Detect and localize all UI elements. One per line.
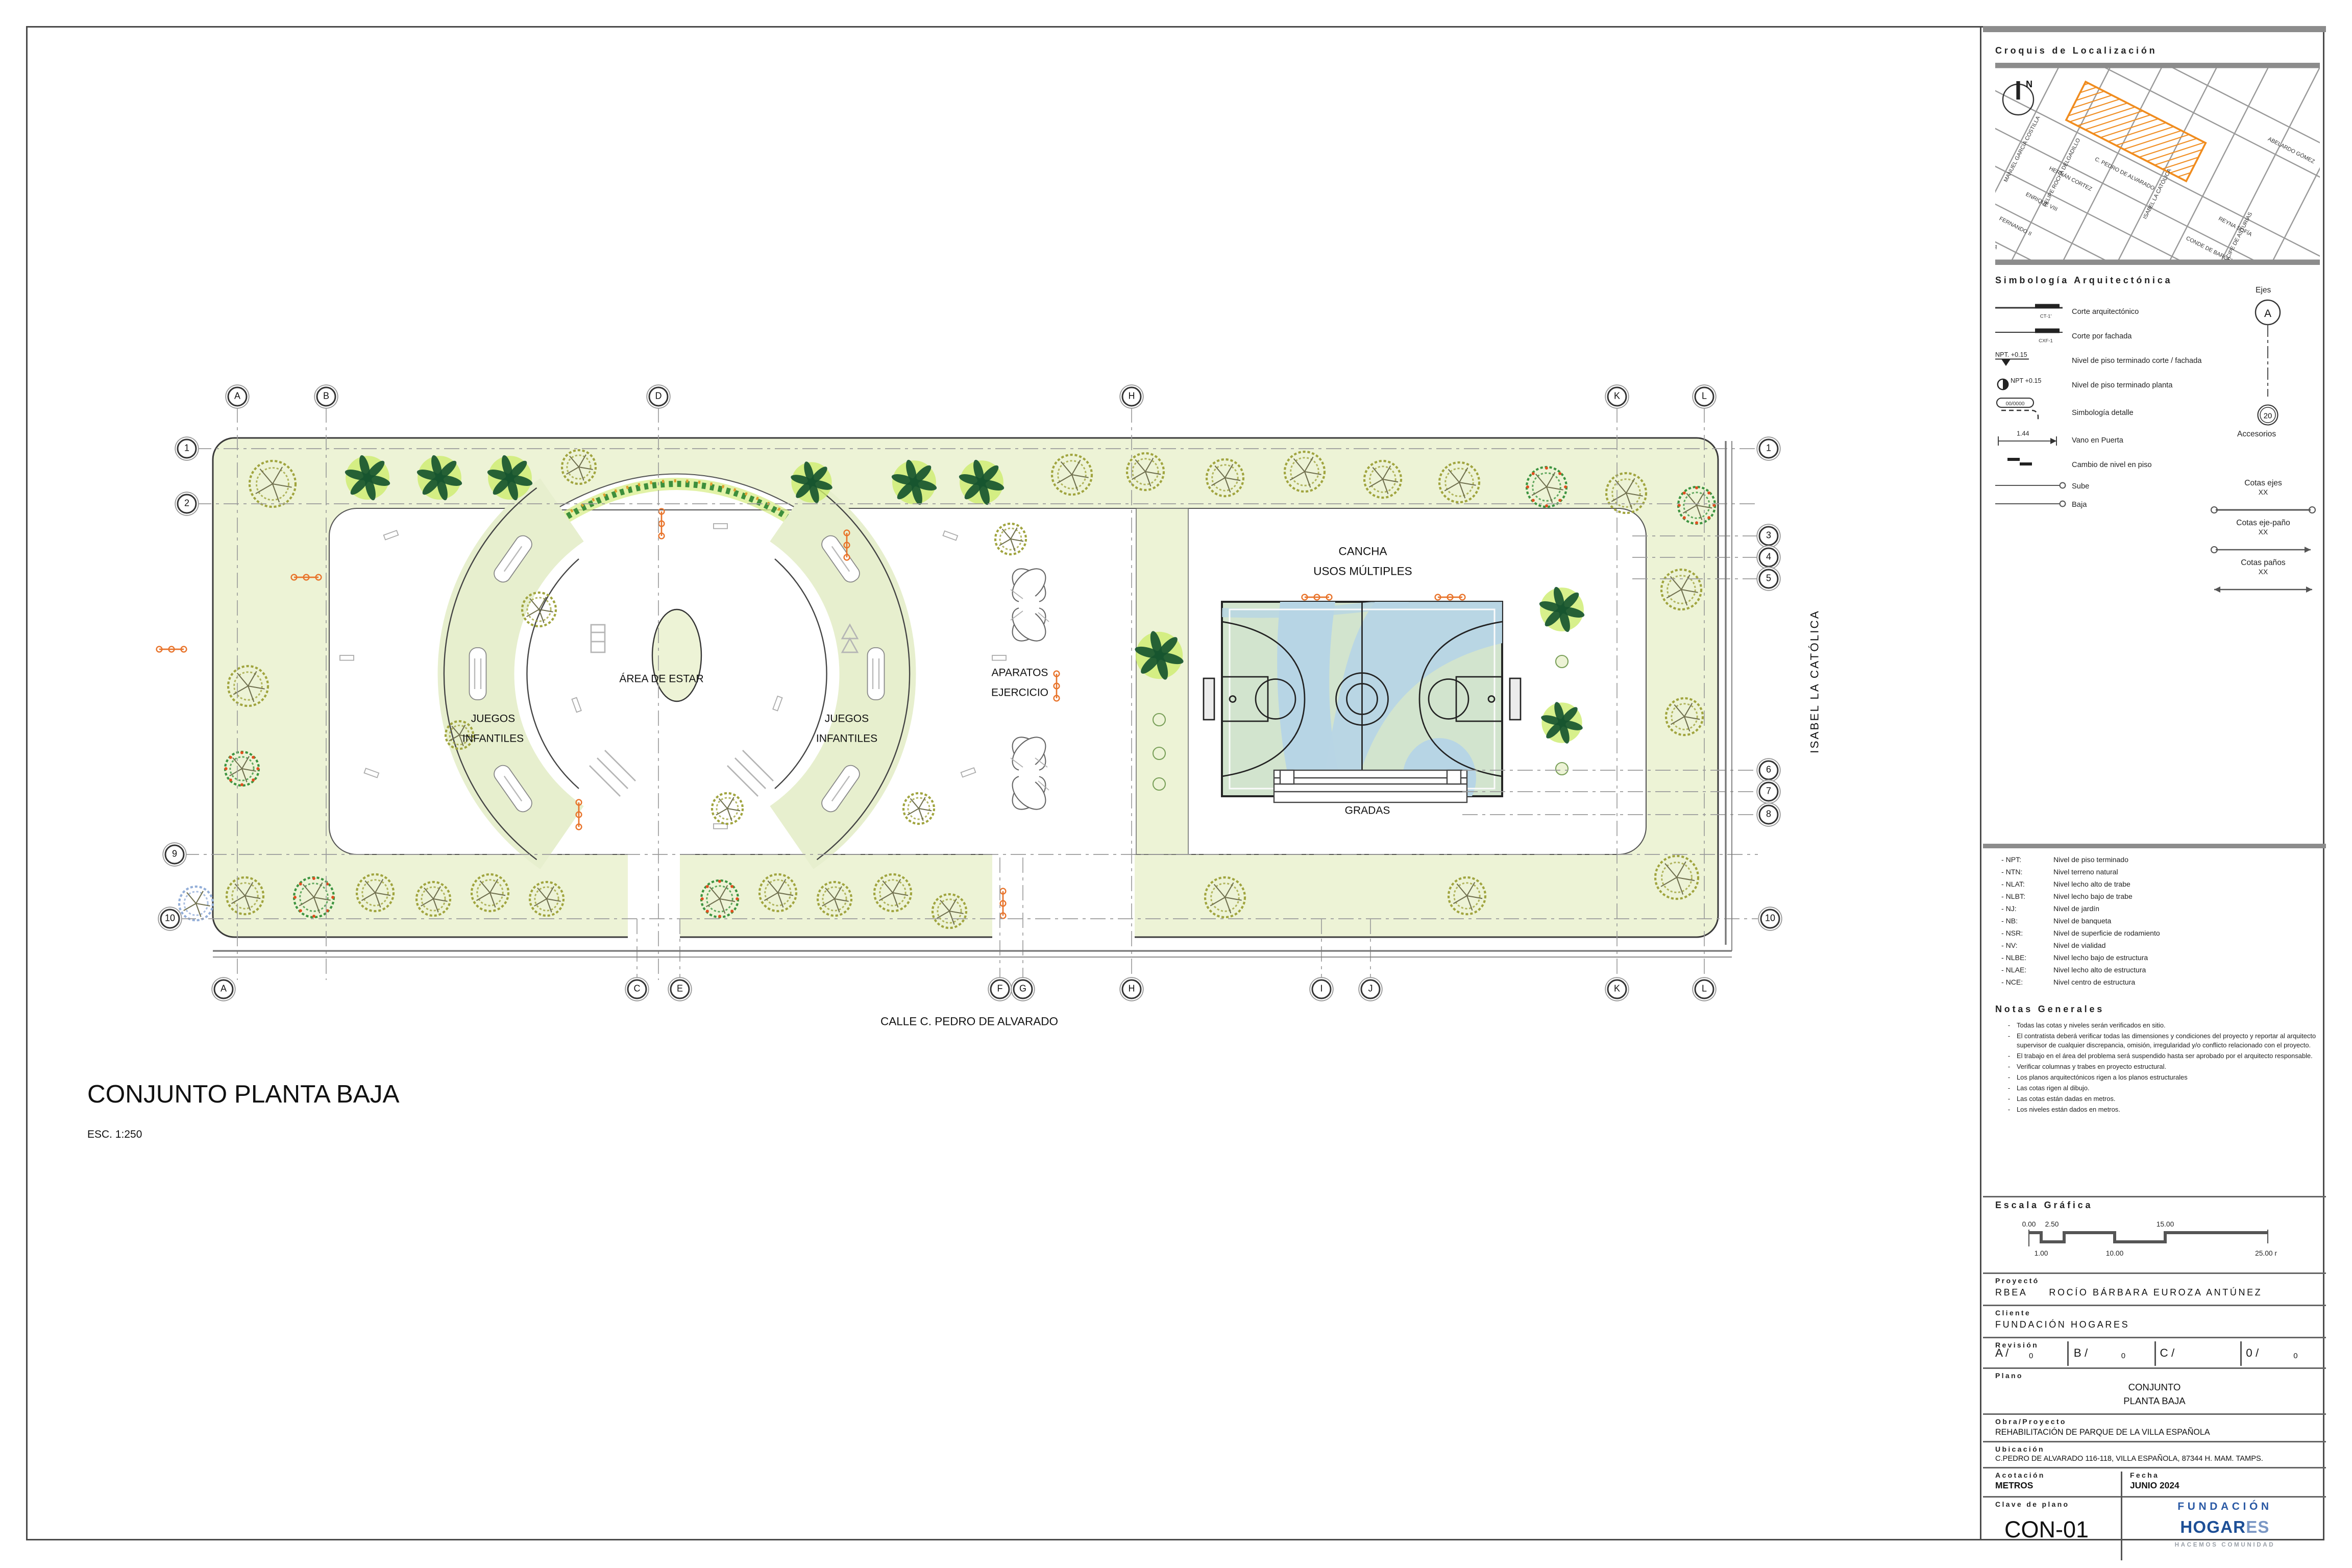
svg-text:10.00: 10.00 bbox=[2106, 1249, 2124, 1257]
titleblock-topbar bbox=[1983, 26, 2326, 32]
axis-bubble-3: 3 bbox=[1759, 526, 1779, 546]
plano-value-line1: CONJUNTO bbox=[1983, 1383, 2326, 1393]
abbreviation-row: - NTN:Nivel terreno natural bbox=[2001, 867, 2315, 879]
ejes-title: Ejes bbox=[2256, 286, 2271, 296]
nota-item: -Verificar columnas y trabes en proyecto… bbox=[2001, 1063, 2317, 1071]
notas-list: -Todas las cotas y niveles serán verific… bbox=[2001, 1021, 2317, 1117]
abbreviation-row: - NV:Nivel de vialidad bbox=[2001, 940, 2315, 952]
plano-value-line2: PLANTA BAJA bbox=[1983, 1396, 2326, 1407]
axis-bubble-H: H bbox=[1122, 387, 1142, 407]
axis-bubble-K: K bbox=[1607, 979, 1627, 999]
divider bbox=[1983, 1496, 2326, 1498]
logo-line1: FUNDACIÓN bbox=[2130, 1502, 2320, 1513]
axis-bubble-4: 4 bbox=[1759, 548, 1779, 568]
axis-bubble-J: J bbox=[1361, 979, 1381, 999]
nota-item: -El trabajo en el área del problema será… bbox=[2001, 1051, 2317, 1060]
divider bbox=[2121, 1496, 2122, 1560]
svg-text:25.00 m: 25.00 m bbox=[2255, 1249, 2277, 1257]
axis-bubble-L: L bbox=[1695, 387, 1714, 407]
axis-bubble-A: A bbox=[228, 387, 248, 407]
plano-label: Plano bbox=[1995, 1372, 2023, 1380]
nota-item: -El contratista deberá verificar todas l… bbox=[2001, 1032, 2317, 1049]
nota-item: -Las cotas rigen al dibujo. bbox=[2001, 1084, 2317, 1093]
abbreviation-row: - NCE:Nivel centro de estructura bbox=[2001, 977, 2315, 989]
axis-bubble-F: F bbox=[990, 979, 1010, 999]
axis-bubble-E: E bbox=[670, 979, 690, 999]
cotas-eje-pano: Cotas eje-paño XX bbox=[2207, 519, 2320, 563]
titleblock-divider bbox=[1980, 26, 1981, 1540]
axis-bubble-L: L bbox=[1695, 979, 1714, 999]
section-bar bbox=[1983, 844, 2326, 848]
revision-cell: C / bbox=[2154, 1341, 2240, 1366]
divider bbox=[1983, 1467, 2326, 1468]
fundacion-hogares-logo: FUNDACIÓN HOGARES HACEMOS COMUNIDAD bbox=[2130, 1502, 2320, 1548]
clave-label: Clave de plano bbox=[1995, 1501, 2069, 1508]
abbreviation-row: - NSR:Nivel de superficie de rodamiento bbox=[2001, 928, 2315, 940]
svg-text:00/0000: 00/0000 bbox=[2006, 401, 2025, 407]
simbologia-title: Simbología Arquitectónica bbox=[1995, 277, 2172, 286]
logo-tagline: HACEMOS COMUNIDAD bbox=[2130, 1540, 2320, 1548]
abbreviation-row: - NJ:Nivel de jardín bbox=[2001, 903, 2315, 916]
axis-bubble-K: K bbox=[1607, 387, 1627, 407]
axis-bubble-D: D bbox=[649, 387, 669, 407]
axis-bubble-9: 9 bbox=[165, 845, 185, 865]
nota-item: -Las cotas están dadas en metros. bbox=[2001, 1095, 2317, 1104]
abbreviation-row: - NLAT:Nivel lecho alto de trabe bbox=[2001, 879, 2315, 891]
axis-bubble-5: 5 bbox=[1759, 569, 1779, 589]
clave-value: CON-01 bbox=[2004, 1517, 2089, 1543]
nota-item: -Los niveles están dados en metros. bbox=[2001, 1106, 2317, 1115]
revision-cell-a: A / bbox=[1995, 1346, 2008, 1360]
ubicacion-label: Ubicación bbox=[1995, 1445, 2045, 1453]
svg-text:CT-1': CT-1' bbox=[2040, 314, 2052, 320]
symbol-row: 00/0000 Simbología detalle bbox=[1995, 397, 2134, 432]
fecha-value: JUNIO 2024 bbox=[2130, 1482, 2179, 1491]
svg-text:20: 20 bbox=[2264, 412, 2272, 421]
cotas-panos: Cotas paños XX bbox=[2207, 559, 2320, 603]
sheet: CANCHA USOS MÚLTIPLES ÁREA DE ESTAR JUEG… bbox=[0, 0, 2352, 1568]
axis-bubble-G: G bbox=[1013, 979, 1033, 999]
divider bbox=[1983, 1305, 2326, 1306]
axis-bubble-7: 7 bbox=[1759, 782, 1779, 802]
escala-title: Escala Gráfica bbox=[1995, 1202, 2093, 1211]
nota-item: -Todas las cotas y niveles serán verific… bbox=[2001, 1021, 2317, 1030]
svg-text:A: A bbox=[2264, 308, 2271, 320]
accesorios-label: Accesorios bbox=[2237, 430, 2276, 439]
cotas-ejes: Cotas ejes XX bbox=[2207, 479, 2320, 524]
axis-bubble-2: 2 bbox=[177, 494, 197, 514]
ejes-symbol: A bbox=[2249, 299, 2286, 400]
divider bbox=[1983, 1337, 2326, 1338]
location-map: C. PEDRO DE ALVARADO HERNÁN CORTEZ ENRIQ… bbox=[1995, 63, 2320, 265]
svg-text:NPT. +0.15: NPT. +0.15 bbox=[1995, 351, 2027, 358]
divider bbox=[1983, 1196, 2326, 1197]
divider bbox=[1983, 1367, 2326, 1369]
svg-text:15.00: 15.00 bbox=[2157, 1220, 2174, 1228]
svg-text:0.00: 0.00 bbox=[2022, 1220, 2036, 1228]
acotacion-label: Acotación bbox=[1995, 1472, 2045, 1479]
abbreviation-row: - NLBT:Nivel lecho bajo de trabe bbox=[2001, 891, 2315, 903]
divider bbox=[1983, 1272, 2326, 1274]
axis-bubble-I: I bbox=[1312, 979, 1332, 999]
notas-title: Notas Generales bbox=[1995, 1006, 2104, 1015]
axis-bubble-10: 10 bbox=[160, 909, 180, 929]
titleblock: Croquis de Localización bbox=[1983, 26, 2326, 1537]
revision-row: 0 B /0 C / 0 /0 bbox=[1983, 1341, 2326, 1366]
axis-bubble-H: H bbox=[1122, 979, 1142, 999]
nota-item: -Los planos arquitectónicos rigen a los … bbox=[2001, 1073, 2317, 1082]
axis-bubble-1: 1 bbox=[177, 439, 197, 459]
abbreviation-row: - NB:Nivel de banqueta bbox=[2001, 916, 2315, 928]
obra-label: Obra/Proyecto bbox=[1995, 1418, 2067, 1426]
revision-cell: B /0 bbox=[2068, 1341, 2154, 1366]
proyecto-value: RBEAROCÍO BÁRBARA EUROZA ANTÚNEZ bbox=[1995, 1289, 2262, 1298]
axis-bubble-8: 8 bbox=[1759, 805, 1779, 825]
proyecto-label: Proyectó bbox=[1995, 1277, 2040, 1285]
logo-line2: HOGARES bbox=[2130, 1513, 2320, 1540]
axis-bubble-B: B bbox=[316, 387, 336, 407]
divider bbox=[2121, 1472, 2122, 1496]
axis-bubble-A: A bbox=[214, 979, 234, 999]
svg-text:2.50: 2.50 bbox=[2045, 1220, 2059, 1228]
svg-text:NPT +0.15: NPT +0.15 bbox=[2011, 377, 2041, 384]
fecha-label: Fecha bbox=[2130, 1472, 2159, 1479]
svg-text:1.44: 1.44 bbox=[2017, 430, 2029, 437]
divider bbox=[1983, 1413, 2326, 1415]
axis-bubble-10: 10 bbox=[1760, 909, 1780, 929]
abbreviation-row: - NPT:Nivel de piso terminado bbox=[2001, 854, 2315, 867]
divider bbox=[1983, 1441, 2326, 1442]
accesorios-symbol: 20 bbox=[2256, 403, 2280, 427]
svg-text:1.00: 1.00 bbox=[2035, 1249, 2048, 1257]
axis-bubble-6: 6 bbox=[1759, 761, 1779, 780]
svg-text:CXF-1: CXF-1 bbox=[2039, 338, 2053, 344]
obra-value: REHABILITACIÓN DE PARQUE DE LA VILLA ESP… bbox=[1995, 1429, 2210, 1438]
abbreviation-row: - NLAE:Nivel lecho alto de estructura bbox=[2001, 965, 2315, 977]
acotacion-value: METROS bbox=[1995, 1482, 2033, 1491]
cliente-value: FUNDACIÓN HOGARES bbox=[1995, 1321, 2129, 1331]
scale-bar: 0.00 2.50 15.00 1.00 10.00 25.00 m bbox=[2017, 1217, 2277, 1266]
symbol-row: Baja bbox=[1995, 492, 2087, 519]
abbreviations-list: - NPT:Nivel de piso terminado- NTN:Nivel… bbox=[2001, 854, 2315, 989]
axis-bubble-C: C bbox=[627, 979, 647, 999]
cliente-label: Cliente bbox=[1995, 1309, 2031, 1317]
ubicacion-value: C.PEDRO DE ALVARADO 116-118, VILLA ESPAÑ… bbox=[1995, 1456, 2263, 1464]
croquis-title: Croquis de Localización bbox=[1995, 47, 2157, 57]
svg-text:N: N bbox=[2026, 79, 2032, 89]
abbreviation-row: - NLBE:Nivel lecho bajo de estructura bbox=[2001, 952, 2315, 965]
axis-bubble-1: 1 bbox=[1759, 439, 1779, 459]
revision-cell: 0 /0 bbox=[2240, 1341, 2326, 1366]
